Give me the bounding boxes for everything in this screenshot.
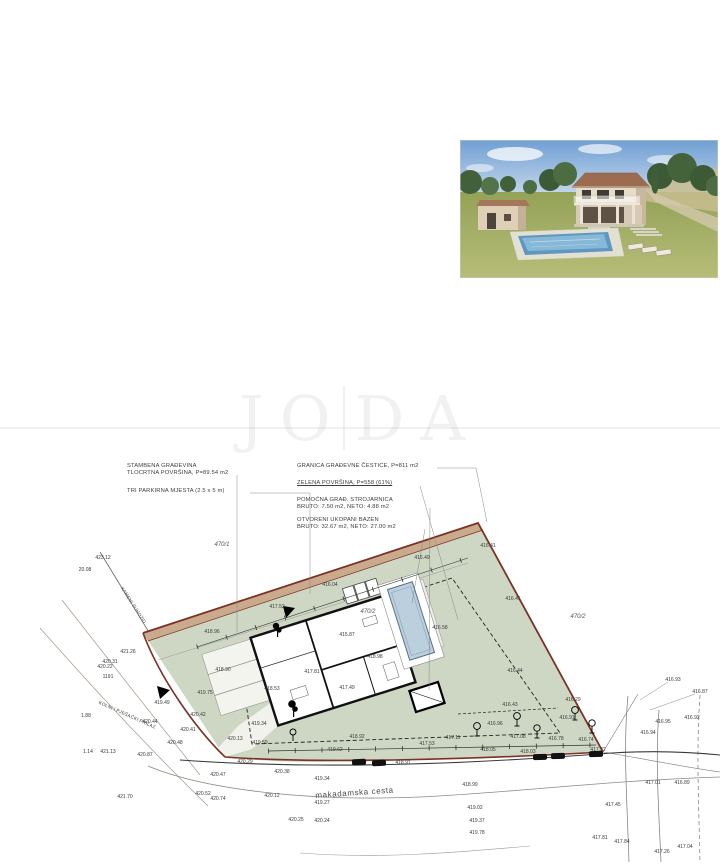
site-plan-drawing	[0, 0, 720, 864]
label-stambena-line2: TLOCRTNA POVRŠINA, P=89.54 m2	[127, 470, 228, 477]
scanned-listing-page: JO DA	[0, 0, 720, 864]
label-bazen-line1: OTVORENI UKOPANI BAZEN	[297, 517, 379, 524]
label-stambena-line1: STAMBENA GRAĐEVINA	[127, 463, 197, 470]
label-pomocna-line1: POMOĆNA GRAĐ. STROJARNICA	[297, 497, 393, 504]
label-granica: GRANICA GRAĐEVNE ČESTICE, P=811 m2	[297, 463, 418, 470]
label-bazen-line2: BRUTO: 32.67 m2, NETO: 27.00 m2	[297, 524, 396, 531]
label-parkirna: TRI PARKIRNA MJESTA (2.5 x 5 m)	[127, 488, 225, 495]
label-pomocna-line2: BRUTO: 7.50 m2, NETO: 4.88 m2	[297, 504, 389, 511]
label-zelena: ZELENA POVRŠINA, P=558 (61%)	[297, 480, 392, 487]
